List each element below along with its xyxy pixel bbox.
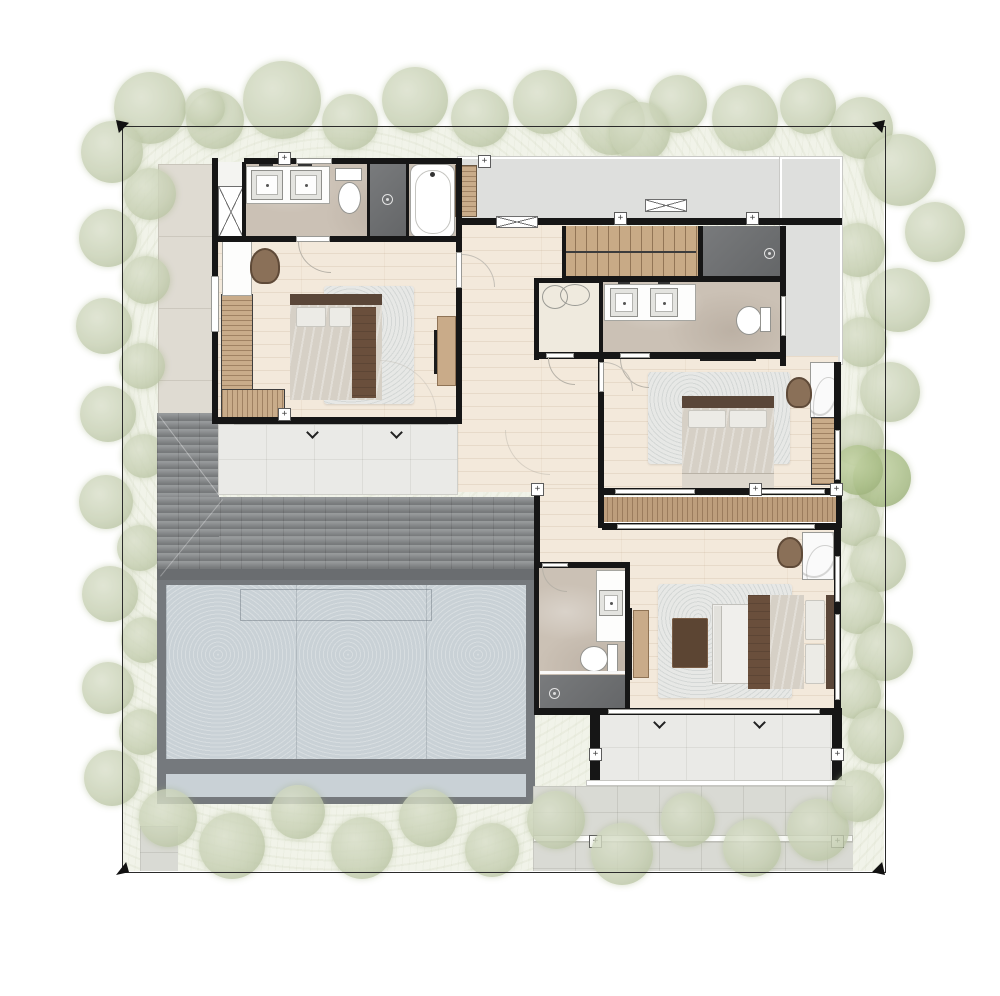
tree-icon xyxy=(331,817,393,879)
tree-icon xyxy=(527,791,585,849)
tree-icon xyxy=(832,770,884,822)
tree-overlap-layer xyxy=(0,0,1000,996)
tree-icon xyxy=(199,813,265,879)
tree-icon xyxy=(465,823,519,877)
floor-plan-canvas xyxy=(0,0,1000,996)
tree-icon xyxy=(399,789,457,847)
tree-icon xyxy=(661,793,715,847)
tree-icon xyxy=(723,819,781,877)
tree-icon xyxy=(139,789,197,847)
tree-icon xyxy=(271,785,325,839)
tree-icon xyxy=(591,823,653,885)
